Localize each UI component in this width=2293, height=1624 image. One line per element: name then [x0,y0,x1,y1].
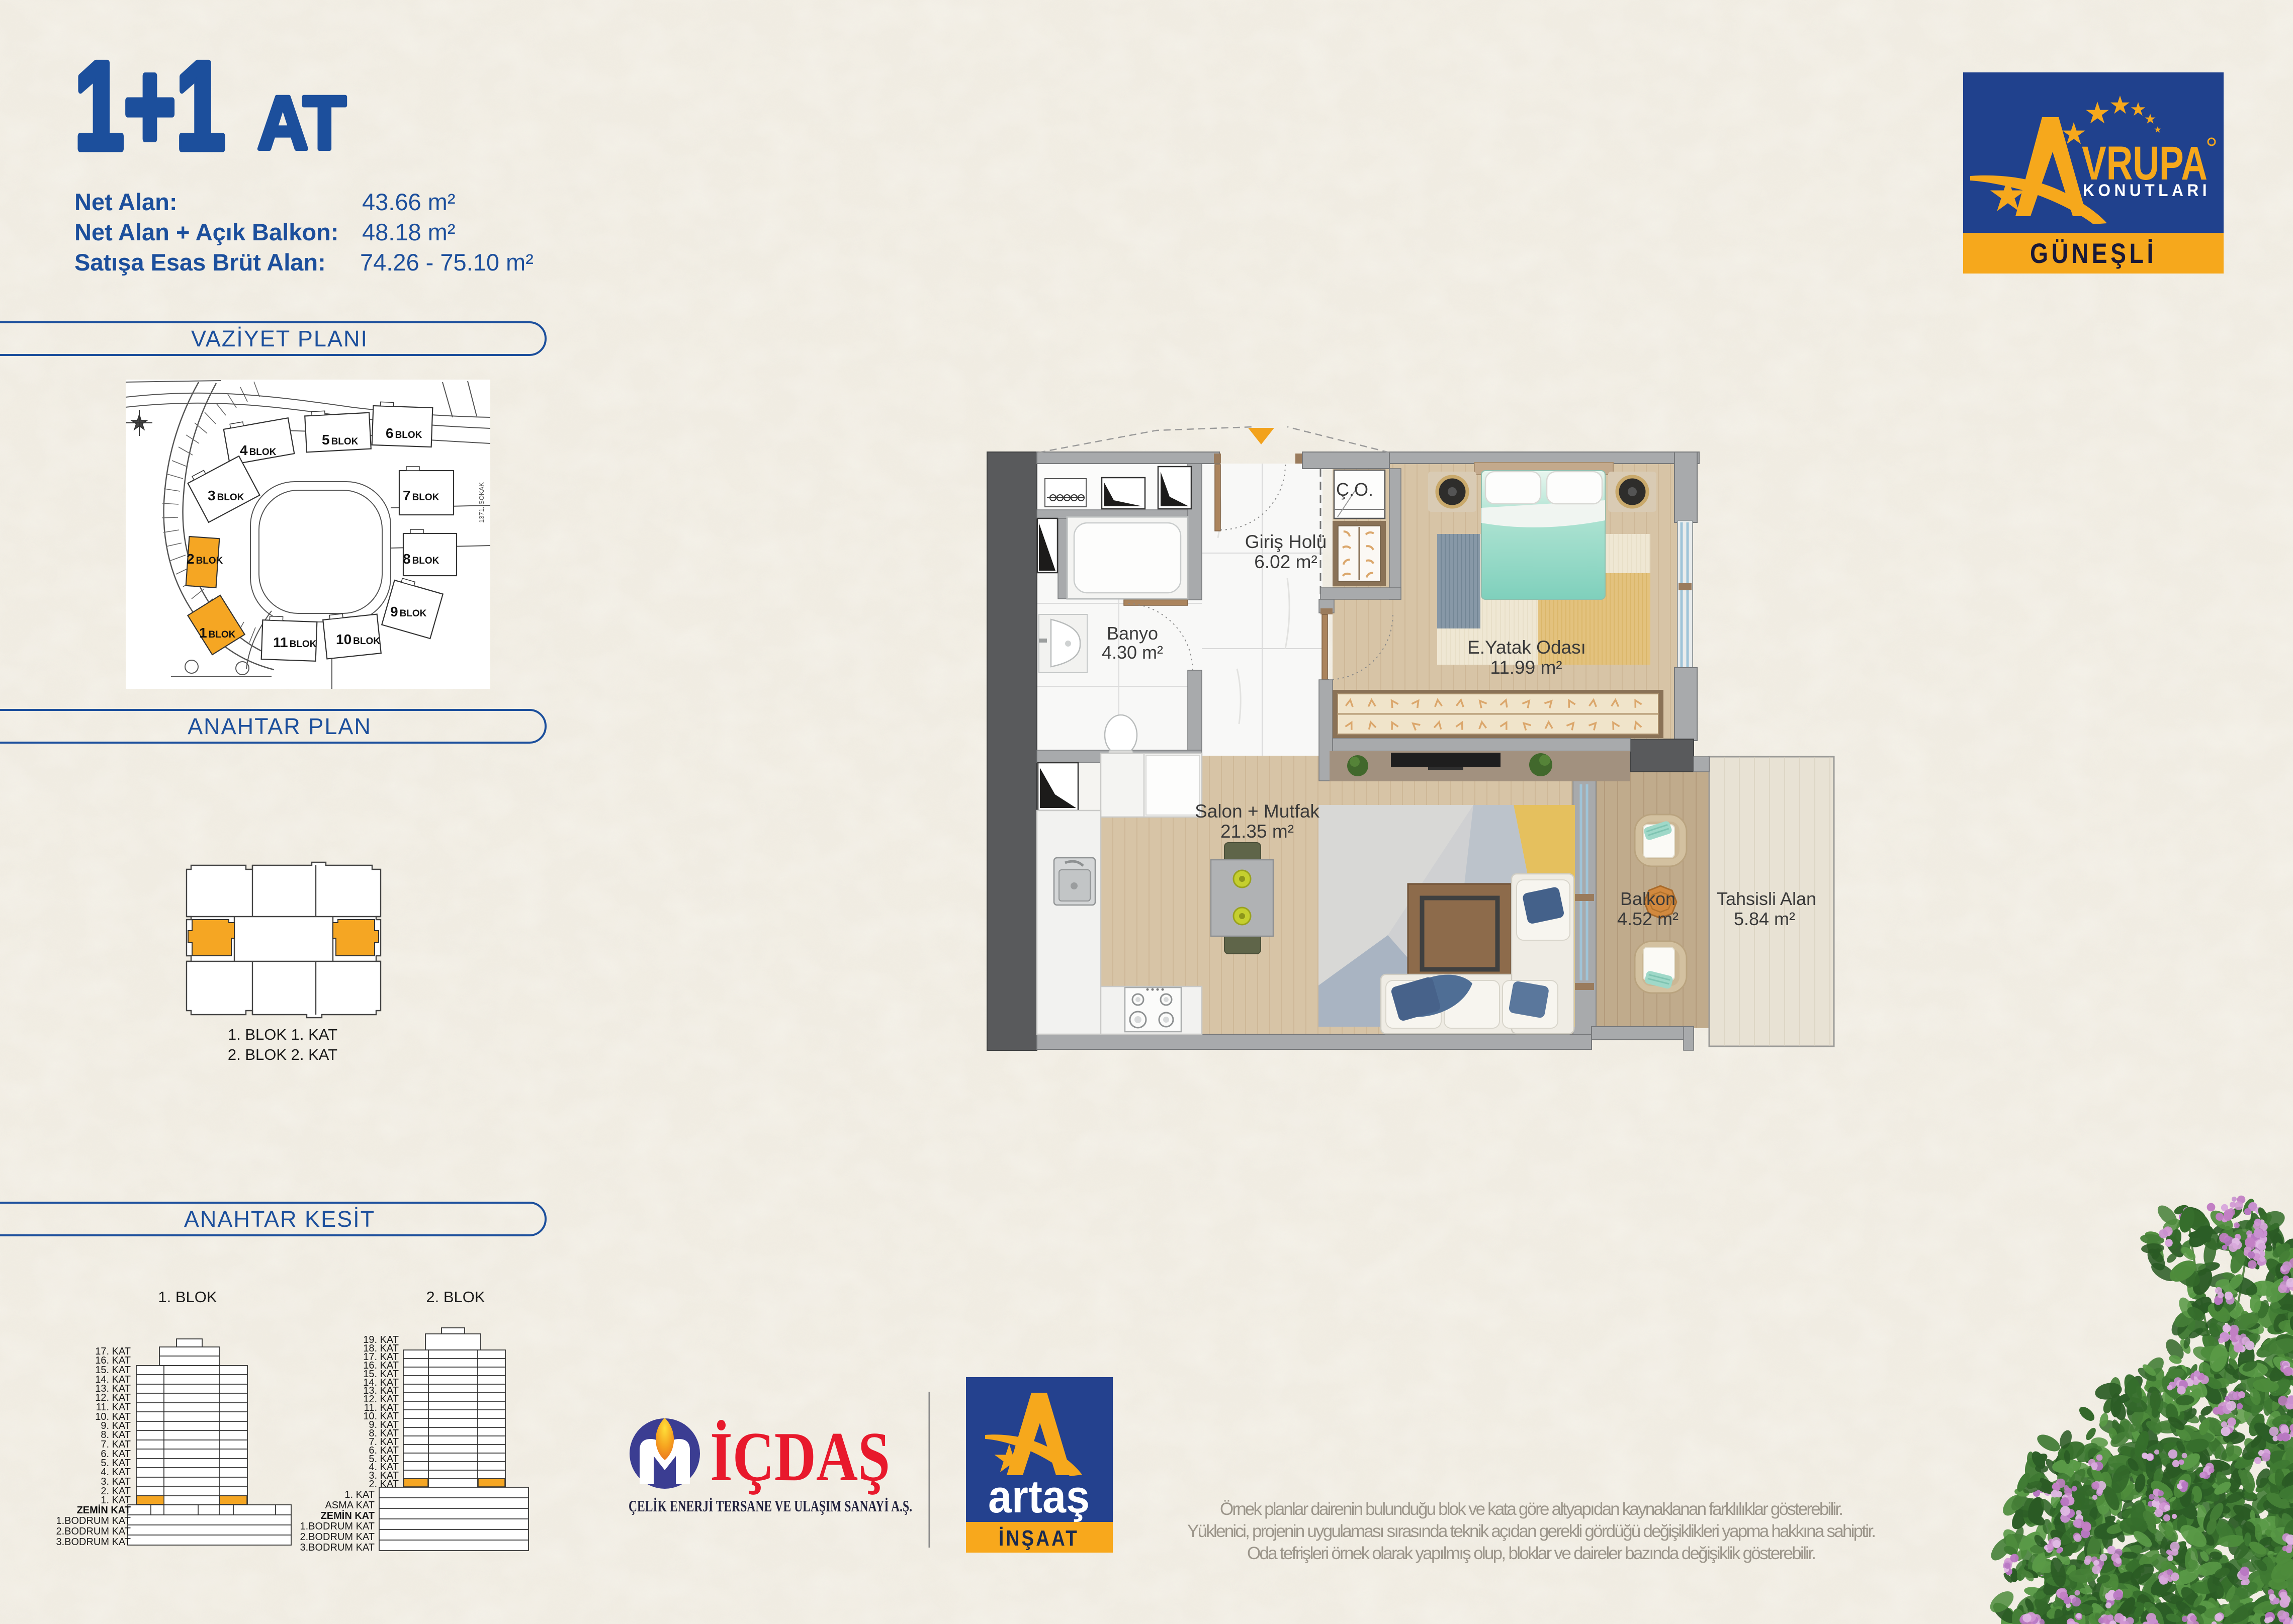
svg-text:1. BLOK: 1. BLOK [158,1288,217,1306]
svg-text:Salon + Mutfak: Salon + Mutfak [1195,801,1319,822]
svg-text:1371. SOKAK: 1371. SOKAK [478,482,485,523]
svg-text:ZEMİN KAT: ZEMİN KAT [77,1504,131,1516]
svg-text:Net Alan:: Net Alan: [74,189,178,215]
svg-text:74.26 - 75.10 m²: 74.26 - 75.10 m² [360,249,534,276]
svg-text:Tahsisli Alan: Tahsisli Alan [1717,888,1816,909]
svg-text:ÇELİK ENERJİ TERSANE VE ULAŞIM: ÇELİK ENERJİ TERSANE VE ULAŞIM SANAYİ A.… [629,1497,912,1515]
svg-text:4.52 m²: 4.52 m² [1617,909,1679,929]
svg-text:1. KAT: 1. KAT [344,1489,375,1500]
svg-text:Balkon: Balkon [1620,888,1675,909]
svg-text:5.84 m²: 5.84 m² [1734,909,1795,929]
svg-text:Ç.O.: Ç.O. [1336,479,1373,500]
svg-text:Satışa Esas Brüt Alan:: Satışa Esas Brüt Alan: [74,249,326,276]
svg-text:İNŞAAT: İNŞAAT [999,1526,1079,1551]
svg-text:Örnek planlar dairenin bulundu: Örnek planlar dairenin bulunduğu blok ve… [1220,1499,1843,1519]
svg-text:43.66 m²: 43.66 m² [362,189,455,215]
svg-text:ANAHTAR PLAN: ANAHTAR PLAN [188,713,372,739]
svg-text:1+1: 1+1 [74,36,225,175]
svg-text:ANAHTAR KESİT: ANAHTAR KESİT [184,1206,375,1232]
svg-text:Giriş Holü: Giriş Holü [1245,531,1327,552]
svg-text:İÇDAŞ: İÇDAŞ [710,1418,890,1496]
svg-text:1. KAT: 1. KAT [101,1495,131,1506]
svg-text:3.BODRUM KAT: 3.BODRUM KAT [300,1542,375,1553]
svg-text:artaş: artaş [988,1471,1090,1522]
svg-text:Oda tefrişleri örnek olarak ya: Oda tefrişleri örnek olarak yapılmış olu… [1247,1544,1816,1563]
svg-text:2.BODRUM KAT: 2.BODRUM KAT [56,1526,131,1537]
svg-text:2. BLOK: 2. BLOK [426,1288,485,1306]
svg-text:2.BODRUM KAT: 2.BODRUM KAT [300,1531,375,1543]
svg-text:1.BODRUM KAT: 1.BODRUM KAT [56,1515,131,1526]
svg-text:ZEMİN KAT: ZEMİN KAT [321,1510,375,1521]
svg-text:4.30 m²: 4.30 m² [1102,642,1163,663]
svg-text:1. BLOK 1. KAT: 1. BLOK 1. KAT [228,1026,337,1043]
svg-text:Banyo: Banyo [1107,623,1158,644]
svg-text:2. BLOK 2. KAT: 2. BLOK 2. KAT [228,1046,337,1063]
svg-text:6.02 m²: 6.02 m² [1254,552,1317,572]
svg-text:2. KAT: 2. KAT [369,1479,399,1490]
svg-text:KONUTLARI: KONUTLARI [2083,181,2211,200]
svg-text:VAZİYET PLANI: VAZİYET PLANI [191,326,368,351]
svg-text:1.BODRUM KAT: 1.BODRUM KAT [300,1521,375,1532]
svg-text:3.BODRUM KAT: 3.BODRUM KAT [56,1537,131,1548]
svg-text:AT: AT [257,80,346,165]
svg-text:11.99 m²: 11.99 m² [1490,657,1562,678]
svg-text:48.18 m²: 48.18 m² [362,219,455,245]
svg-text:21.35 m²: 21.35 m² [1220,821,1294,842]
svg-text:E.Yatak Odası: E.Yatak Odası [1467,637,1586,658]
svg-text:GÜNEŞLİ: GÜNEŞLİ [2030,237,2157,269]
svg-text:ASMA KAT: ASMA KAT [325,1500,375,1511]
svg-text:Yüklenici, projenin uygulaması: Yüklenici, projenin uygulaması sırasında… [1187,1521,1876,1541]
svg-text:Net Alan + Açık Balkon:: Net Alan + Açık Balkon: [74,219,338,245]
